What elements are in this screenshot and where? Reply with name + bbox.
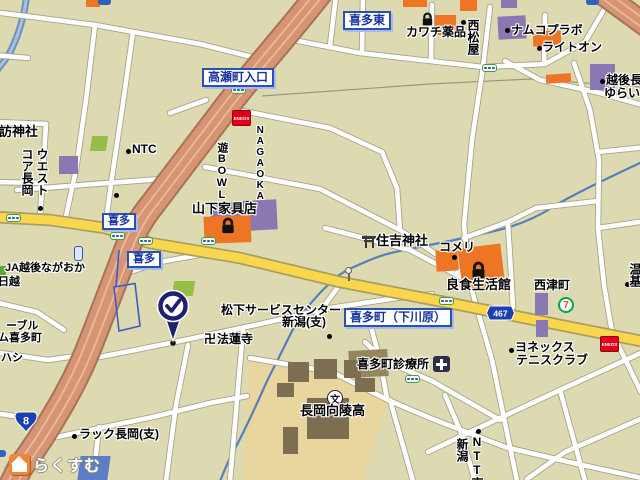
traffic-signal-icon — [439, 297, 454, 305]
traffic-signal-icon — [586, 0, 599, 5]
watermark-text: らくすむ — [33, 452, 101, 476]
poi-dot — [38, 206, 43, 211]
traffic-signal-icon — [74, 246, 83, 261]
label-ntc: NTC — [132, 143, 157, 156]
traffic-signal-icon — [405, 375, 420, 383]
watermark-house-icon — [9, 454, 30, 475]
map-pin-check-marker[interactable] — [150, 284, 196, 348]
label-rack-nagaoka: ラック長岡(支) — [79, 428, 159, 441]
label-ja-echigo: JA越後ながおか — [5, 263, 85, 275]
label-matsushita: 新潟(支) — [282, 316, 326, 329]
label-suwa-jinja: 訪神社 — [0, 125, 38, 139]
intersection-sign-shimokawara: 喜多町（下川原） — [344, 308, 452, 327]
intersection-sign-kita: 喜多 — [127, 251, 161, 268]
label-nishimatsuya: 西松屋 — [466, 19, 479, 55]
traffic-signal-icon — [201, 237, 216, 245]
school-building — [314, 359, 337, 379]
intersection-sign-kita: 喜多 — [102, 213, 136, 230]
intersection-sign-kitahigashi: 喜多東 — [343, 11, 391, 30]
hospital-icon — [433, 356, 450, 372]
map-canvas[interactable]: ENEOS ENEOS 7 文 訪神社 ウエスト コア長岡 NAGAOKA 遊B… — [0, 0, 640, 480]
label-kitamachi-fragment: ム喜多町 — [0, 333, 42, 345]
building-green — [90, 136, 108, 151]
eneos-gas-station-icon: ENEOS — [600, 336, 619, 352]
poi-dot — [452, 255, 457, 260]
building-orange — [546, 73, 572, 84]
label-west-core: ウエスト — [35, 148, 48, 196]
label-sumiyoshi: 住吉神社 — [376, 234, 428, 248]
traffic-signal-icon — [110, 232, 125, 240]
label-namco: ナムコプラボ — [511, 24, 583, 37]
traffic-signal-icon — [138, 237, 153, 245]
label-yurai: 越後長 — [606, 74, 640, 87]
poi-dot — [72, 434, 77, 439]
label-nagaoka-bowl: 遊BOWL — [215, 142, 227, 201]
torii-shrine-icon — [362, 235, 376, 248]
poi-dot — [114, 193, 119, 198]
building-purple — [59, 156, 78, 174]
label-horenji: 法蓮寺 — [217, 333, 253, 346]
poi-dot — [126, 149, 131, 154]
label-yurai: ゆらい — [604, 87, 640, 100]
watermark-logo: らくすむ — [9, 452, 101, 476]
building-purple — [535, 293, 548, 315]
signal-pole-icon — [345, 267, 352, 274]
label-nishizu-cho: 西津町 — [534, 279, 570, 292]
label-ntt-east: 新潟 — [455, 438, 468, 462]
label-ryoshoku: 良食生活館 — [446, 278, 511, 292]
label-ntt-east: NTT東 — [470, 435, 483, 480]
traffic-signal-icon — [482, 64, 497, 72]
label-yonex: ヨネックス — [515, 341, 575, 354]
school-building — [288, 362, 309, 382]
label-komeri: コメリ — [439, 241, 475, 254]
label-koryo-high: 長岡向陵高 — [300, 404, 365, 418]
traffic-signal-icon — [0, 450, 6, 457]
building-orange — [403, 0, 427, 7]
label-yonex: テニスクラブ — [516, 354, 588, 367]
label-ja-echigo: 日越 — [0, 277, 20, 289]
school-building — [355, 378, 375, 392]
label-yamashita-kagu: 山下家具店 — [192, 202, 257, 216]
eneos-gas-station-icon: ENEOS — [232, 110, 251, 126]
seven-eleven-icon: 7 — [558, 297, 574, 313]
store-lock-icon — [219, 217, 237, 235]
building-purple — [501, 0, 517, 8]
school-building — [277, 383, 294, 397]
svg-text:8: 8 — [23, 416, 29, 428]
manji-temple-icon: 卍 — [204, 333, 216, 346]
poi-dot — [476, 429, 481, 434]
traffic-signal-icon — [231, 86, 246, 94]
label-west-core: コア長岡 — [20, 148, 33, 196]
route-badge-national-8: 8 — [14, 411, 38, 433]
building-orange — [460, 0, 477, 11]
intersection-sign-takase: 高瀬町入口 — [202, 68, 274, 87]
traffic-signal-icon — [98, 0, 111, 5]
label-right-on: ライトオン — [542, 41, 602, 54]
poi-dot — [505, 28, 510, 33]
building-purple — [536, 320, 548, 337]
label-edge-fragment: 温基 — [628, 263, 640, 287]
label-kawachi: カワチ薬品 — [406, 26, 466, 39]
poi-dot — [509, 348, 514, 353]
svg-text:467: 467 — [493, 309, 507, 319]
label-hashi-fragment: ハシ — [1, 353, 23, 365]
poi-dot — [327, 334, 332, 339]
traffic-signal-icon — [6, 214, 21, 222]
label-kitamachi-clinic: 喜多町診療所 — [357, 358, 429, 371]
route-badge-prefectural-467: 467 — [486, 305, 515, 321]
school-building — [283, 427, 298, 454]
poi-dot — [600, 79, 605, 84]
label-nagaoka-bowl: NAGAOKA — [254, 125, 265, 202]
